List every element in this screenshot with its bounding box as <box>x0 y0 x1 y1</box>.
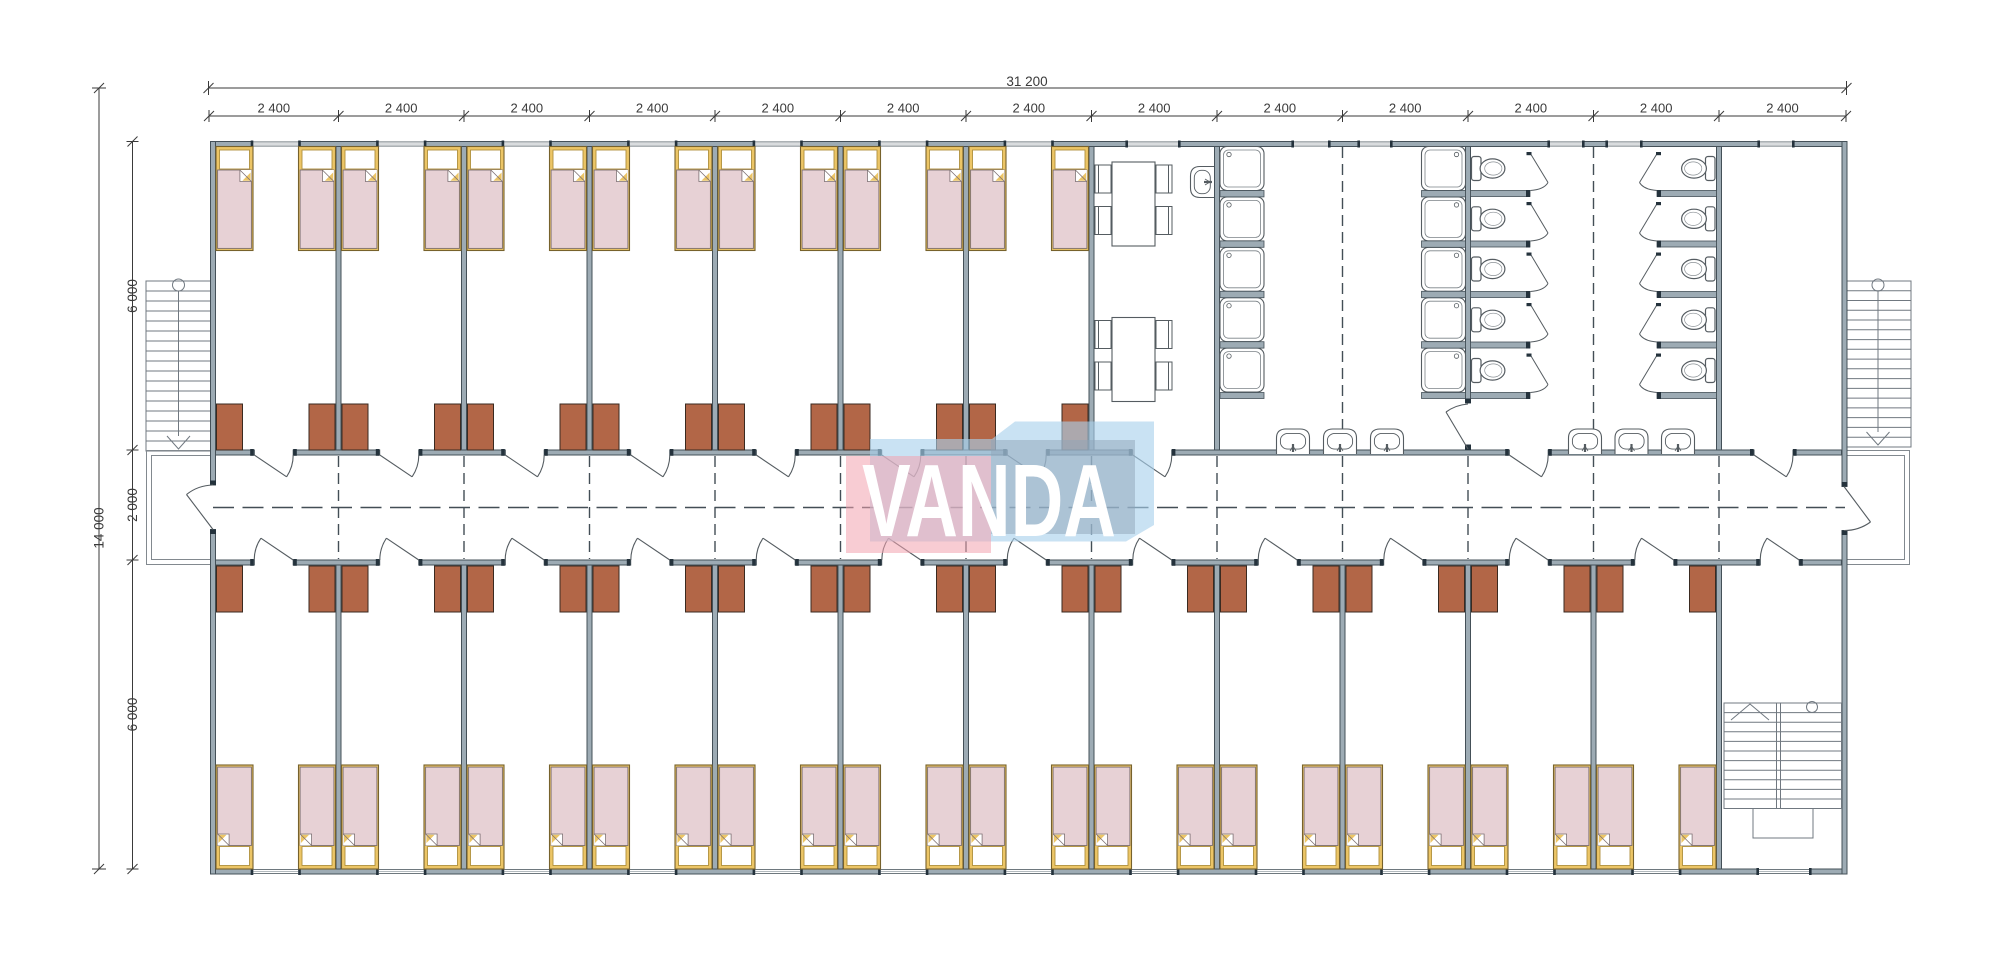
svg-text:2 400: 2 400 <box>258 101 291 116</box>
svg-text:2 400: 2 400 <box>762 101 795 116</box>
svg-text:2 400: 2 400 <box>511 101 544 116</box>
svg-text:2 000: 2 000 <box>125 488 140 522</box>
svg-text:2 400: 2 400 <box>1389 101 1422 116</box>
svg-text:6 000: 6 000 <box>125 698 140 732</box>
svg-text:6 000: 6 000 <box>125 279 140 313</box>
svg-text:2 400: 2 400 <box>385 101 418 116</box>
svg-text:2 400: 2 400 <box>1640 101 1673 116</box>
svg-text:2 400: 2 400 <box>636 101 669 116</box>
svg-text:2 400: 2 400 <box>1766 101 1799 116</box>
svg-text:14 000: 14 000 <box>92 507 107 548</box>
svg-text:2 400: 2 400 <box>1515 101 1548 116</box>
svg-text:2 400: 2 400 <box>1264 101 1297 116</box>
svg-text:2 400: 2 400 <box>1138 101 1171 116</box>
svg-text:2 400: 2 400 <box>1013 101 1046 116</box>
svg-text:2 400: 2 400 <box>887 101 920 116</box>
svg-text:31 200: 31 200 <box>1006 74 1047 89</box>
svg-text:VANDA: VANDA <box>862 443 1116 558</box>
